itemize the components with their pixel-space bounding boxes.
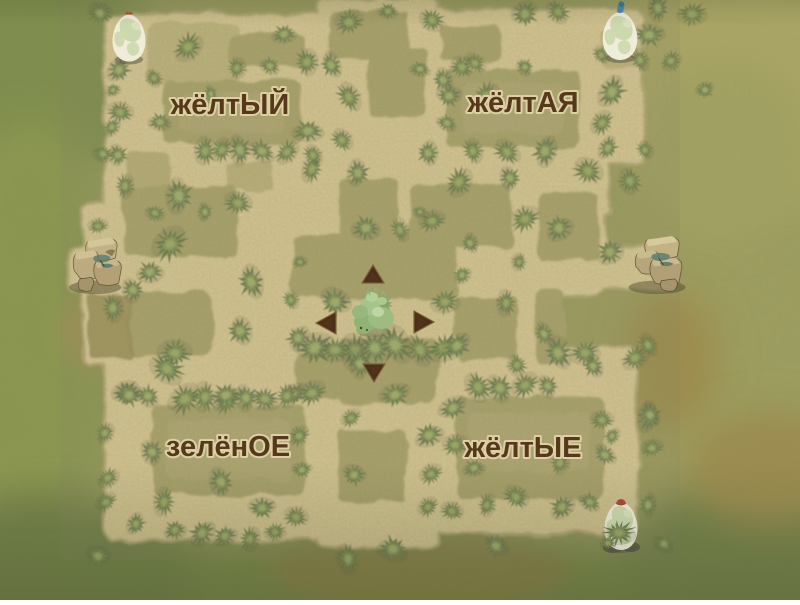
svg-text:зелёнОЕ: зелёнОЕ: [166, 431, 290, 463]
svg-text:жёлтЫЙ: жёлтЫЙ: [170, 87, 290, 121]
svg-text:жёлтЫЕ: жёлтЫЕ: [463, 432, 581, 464]
svg-text:жёлтАЯ: жёлтАЯ: [466, 87, 578, 119]
